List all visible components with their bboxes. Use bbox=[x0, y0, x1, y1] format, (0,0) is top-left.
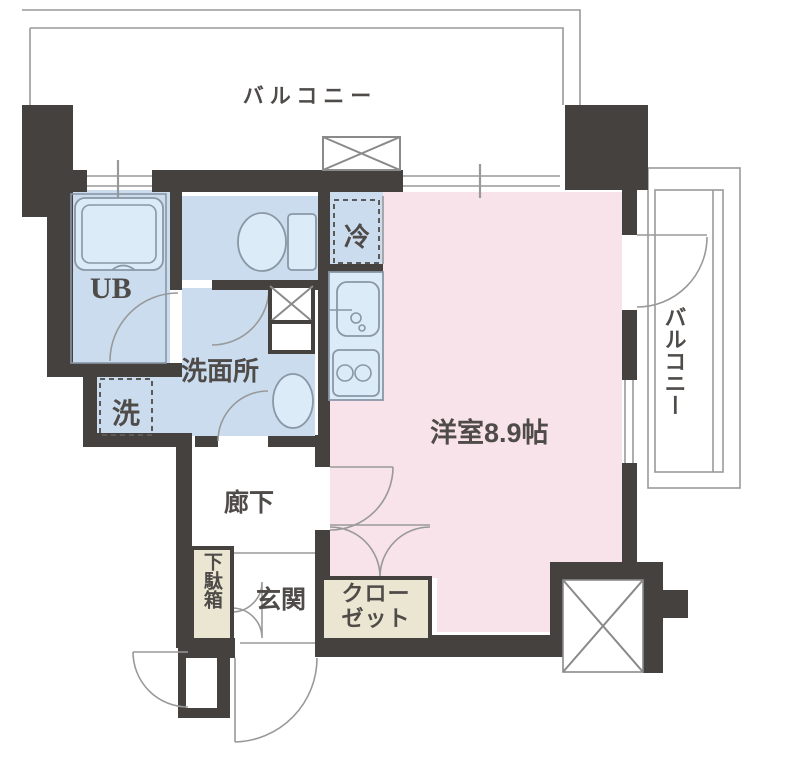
washer-label: 洗 bbox=[112, 392, 140, 432]
bathtub-icon bbox=[75, 198, 163, 270]
main-room-floor-sw bbox=[330, 562, 437, 578]
unit-bath-label: UB bbox=[90, 272, 132, 306]
main-room-floor-west bbox=[330, 400, 383, 562]
toilet-icon bbox=[238, 213, 286, 271]
balcony-top-label: バルコニー bbox=[235, 80, 385, 110]
shoe-box-label: 下駄箱 bbox=[200, 552, 221, 638]
entrance-label: 玄関 bbox=[256, 580, 306, 616]
closet-label: クローゼット bbox=[339, 581, 413, 632]
floor-plan: バルコニー UB 洗面所 洗 冷 洋室8.9帖 バルコニー 廊下 玄関 下駄箱 … bbox=[0, 0, 801, 775]
balcony-right-label: バルコニー bbox=[660, 306, 688, 476]
stove-icon bbox=[333, 350, 379, 396]
main-room-floor bbox=[383, 192, 622, 562]
main-room-label: 洋室8.9帖 bbox=[430, 411, 549, 450]
kitchen-sink-icon bbox=[337, 282, 379, 336]
washroom-label: 洗面所 bbox=[181, 351, 259, 388]
entrance-door-arc bbox=[235, 658, 317, 742]
washbasin-icon bbox=[273, 374, 313, 428]
cabinet-box bbox=[270, 322, 313, 352]
fridge-label: 冷 bbox=[344, 217, 370, 254]
corridor-label: 廊下 bbox=[224, 483, 274, 519]
main-room-floor-south bbox=[437, 562, 550, 632]
